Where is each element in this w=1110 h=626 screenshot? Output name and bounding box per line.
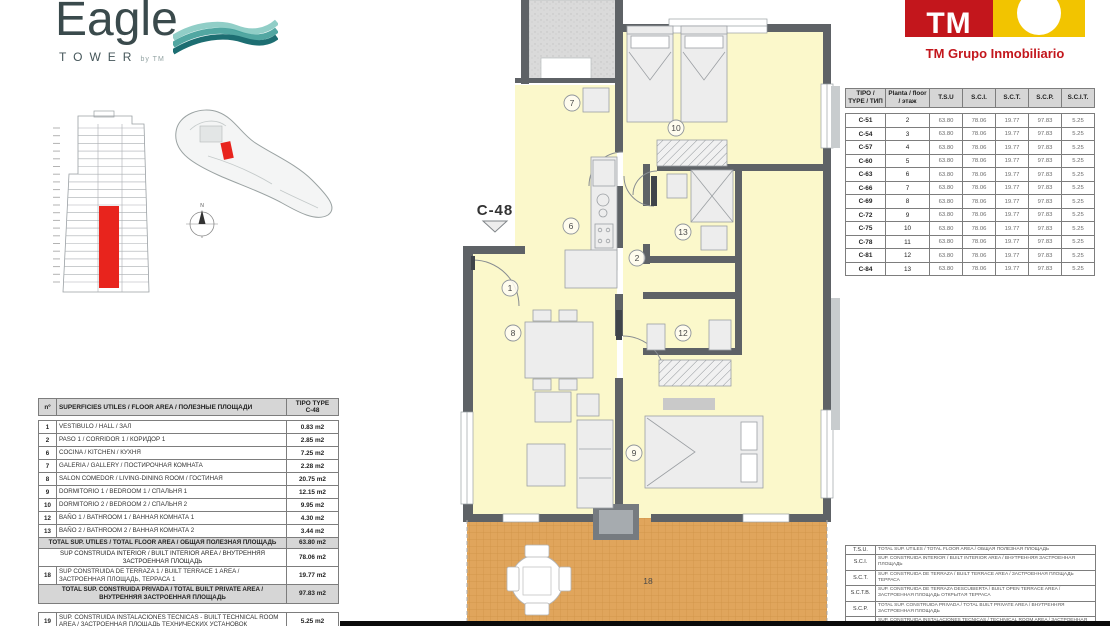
types-col-header: Planta / floor / этаж	[886, 89, 930, 108]
areas-col-type: TIPO TYPE C-48	[287, 399, 339, 416]
sink-bath-2	[701, 226, 727, 250]
site-block	[200, 126, 222, 142]
eagle-tower-logo: Eagle TOWERby TM	[55, 0, 285, 62]
room-label-2: 2	[635, 253, 640, 263]
areas-row: 12BAÑO 1 / BATHROOM 1 / ВАННАЯ КОМНАТА 1…	[39, 512, 339, 525]
type-row: C-51263.8078.0619.7797.835.25	[846, 114, 1095, 128]
areas-row: 6COCINA / KITCHEN / КУХНЯ7.25 m2	[39, 447, 339, 460]
tm-logo: TM TM Grupo Inmobiliario	[905, 0, 1085, 61]
type-row: C-811263.8078.0619.7797.835.25	[846, 249, 1095, 263]
areas-row: 7GALERIA / GALLERY / ПОСТИРОЧНАЯ КОМНАТА…	[39, 460, 339, 473]
compass-rose: N	[186, 203, 218, 238]
eagle-logo-byline: by TM	[140, 56, 164, 63]
type-row: C-781163.8078.0619.7797.835.25	[846, 235, 1095, 249]
areas-total-row: TOTAL SUP. CONSTRUIDA PRIVADA / TOTAL BU…	[39, 585, 339, 604]
apartment-floor-plan: C-48 12678910121318	[455, 0, 840, 626]
dining-table	[525, 322, 593, 378]
legend-row: S.C.P.TOTAL SUP. CONSTRUIDA PRIVADA / TO…	[846, 601, 1096, 616]
types-table-header: TIPO / TYPE / ТИПPlanta / floor / этажT.…	[845, 88, 1095, 108]
types-col-header: T.S.U	[930, 89, 963, 108]
site-outline	[176, 110, 332, 217]
floor-axis-ticks	[53, 128, 60, 283]
entrance-marker-icon	[483, 221, 507, 232]
room-label-6: 6	[569, 221, 574, 231]
areas-row: 8SALON COMEDOR / LIVING-DINING ROOM / ГО…	[39, 473, 339, 486]
type-row: C-57463.8078.0619.7797.835.25	[846, 141, 1095, 155]
unit-label: C-48	[477, 202, 514, 219]
areas-col-n: nº	[39, 399, 57, 416]
areas-table-rows: 1VESTIBULO / HALL / ЗАЛ0.83 m22PASO 1 / …	[38, 420, 339, 604]
site-plan-diagram: N	[160, 104, 345, 249]
type-row: C-60563.8078.0619.7797.835.25	[846, 154, 1095, 168]
areas-total-row: TOTAL SUP. UTILES / TOTAL FLOOR AREA / О…	[39, 538, 339, 549]
type-row: C-841363.8078.0619.7797.835.25	[846, 262, 1095, 276]
areas-tech-row: 19SUP. CONSTRUIDA INSTALACIONES TECNICAS…	[39, 612, 339, 626]
types-col-header: S.C.T.	[996, 89, 1029, 108]
types-col-header: S.C.P.	[1029, 89, 1062, 108]
sink-bath-1	[709, 320, 731, 350]
room-label-1: 1	[508, 283, 513, 293]
type-row: C-72963.8078.0619.7797.835.25	[846, 208, 1095, 222]
tm-logo-circle-icon	[1017, 0, 1061, 35]
legend-table: T.S.U.TOTAL SUP. UTILES / TOTAL FLOOR AR…	[845, 545, 1096, 626]
types-table-rows: C-51263.8078.0619.7797.835.25C-54363.807…	[845, 113, 1095, 276]
legend-row: S.C.I.SUP. CONSTRUIDA INTERIOR / BUILT I…	[846, 555, 1096, 570]
room-label-12: 12	[678, 328, 688, 338]
areas-table: nº SUPERFICIES UTILES / FLOOR AREA / ПОЛ…	[38, 398, 338, 626]
type-row: C-66763.8078.0619.7797.835.25	[846, 181, 1095, 195]
tv-unit	[535, 392, 571, 422]
types-col-header: S.C.I.	[963, 89, 996, 108]
building-elevation-diagram	[52, 110, 162, 300]
side-table	[577, 394, 599, 416]
toilet-bath-1	[647, 324, 665, 350]
areas-type-line1: TIPO TYPE	[296, 400, 329, 407]
toilet-bath-2	[667, 174, 687, 198]
room-label-18: 18	[643, 576, 653, 586]
areas-table-tech: 19SUP. CONSTRUIDA INSTALACIONES TECNICAS…	[38, 612, 339, 626]
sofa	[577, 420, 613, 508]
areas-col-title: SUPERFICIES UTILES / FLOOR AREA / ПОЛЕЗН…	[57, 399, 287, 416]
eagle-logo-subtitle-row: TOWERby TM	[59, 50, 165, 64]
types-col-header: TIPO / TYPE / ТИП	[846, 89, 886, 108]
room-label-7: 7	[570, 98, 575, 108]
areas-row: 13BAÑO 2 / BATHROOM 2 / ВАННАЯ КОМНАТА 2…	[39, 525, 339, 538]
legend-row: T.S.U.TOTAL SUP. UTILES / TOTAL FLOOR AR…	[846, 546, 1096, 555]
eagle-logo-title: Eagle	[55, 0, 285, 47]
adjacent-unit-walls	[831, 86, 840, 430]
compass-north-label: N	[200, 203, 204, 209]
tm-logo-red-square: TM	[905, 0, 993, 37]
areas-table-header: nº SUPERFICIES UTILES / FLOOR AREA / ПОЛ…	[38, 398, 339, 416]
areas-row: 2PASO 1 / CORRIDOR 1 / КОРИДОР 12.85 m2	[39, 434, 339, 447]
areas-row: 18SUP CONSTRUIDA DE TERRAZA 1 / BUILT TE…	[39, 567, 339, 585]
areas-subtotal-row: SUP CONSTRUIDA INTERIOR / BUILT INTERIOR…	[39, 548, 339, 567]
room-label-9: 9	[632, 448, 637, 458]
kitchen-island	[565, 250, 617, 288]
balcony-door-step	[593, 504, 639, 540]
wardrobe-bedroom-1	[659, 360, 731, 386]
legend-row: S.C.T.SUP. CONSTRUIDA DE TERRAZA / BUILT…	[846, 570, 1096, 585]
eagle-logo-subtitle: TOWER	[59, 50, 138, 64]
legend-row: S.C.T.B.SUP. CONSTRUIDA DE TERRAZA DESCU…	[846, 586, 1096, 601]
tm-logo-mark: TM	[926, 7, 971, 37]
areas-row: 10DORMITORIO 2 / BEDROOM 2 / СПАЛЬНЯ 29.…	[39, 499, 339, 512]
areas-type-line2: C-48	[306, 407, 320, 414]
type-row: C-54363.8078.0619.7797.835.25	[846, 127, 1095, 141]
tm-logo-squares: TM	[905, 0, 1085, 37]
unit-stack-highlight	[99, 206, 119, 288]
areas-row: 1VESTIBULO / HALL / ЗАЛ0.83 m2	[39, 421, 339, 434]
type-row: C-751063.8078.0619.7797.835.25	[846, 222, 1095, 236]
unit-types-table: TIPO / TYPE / ТИПPlanta / floor / этажT.…	[845, 88, 1095, 276]
shelf	[663, 398, 715, 410]
tm-company-name: TM Grupo Inmobiliario	[905, 46, 1085, 61]
type-row: C-63663.8078.0619.7797.835.25	[846, 168, 1095, 182]
room-label-13: 13	[678, 227, 688, 237]
footer-bar	[340, 621, 1110, 626]
armchair	[527, 444, 565, 486]
laundry-appliance	[583, 88, 609, 112]
wardrobe-bedroom-2	[657, 140, 727, 166]
type-row: C-69863.8078.0619.7797.835.25	[846, 195, 1095, 209]
abbreviations-legend: T.S.U.TOTAL SUP. UTILES / TOTAL FLOOR AR…	[845, 545, 1095, 626]
types-col-header: S.C.I.T.	[1062, 89, 1095, 108]
areas-row: 9DORMITORIO 1 / BEDROOM 1 / СПАЛЬНЯ 112.…	[39, 486, 339, 499]
tm-logo-yellow-square	[993, 0, 1085, 37]
stair-landing	[541, 58, 591, 80]
room-label-8: 8	[511, 328, 516, 338]
floor-plan-sheet: Eagle TOWERby TM TM TM Grupo Inmobiliari…	[0, 0, 1110, 626]
room-label-10: 10	[671, 123, 681, 133]
